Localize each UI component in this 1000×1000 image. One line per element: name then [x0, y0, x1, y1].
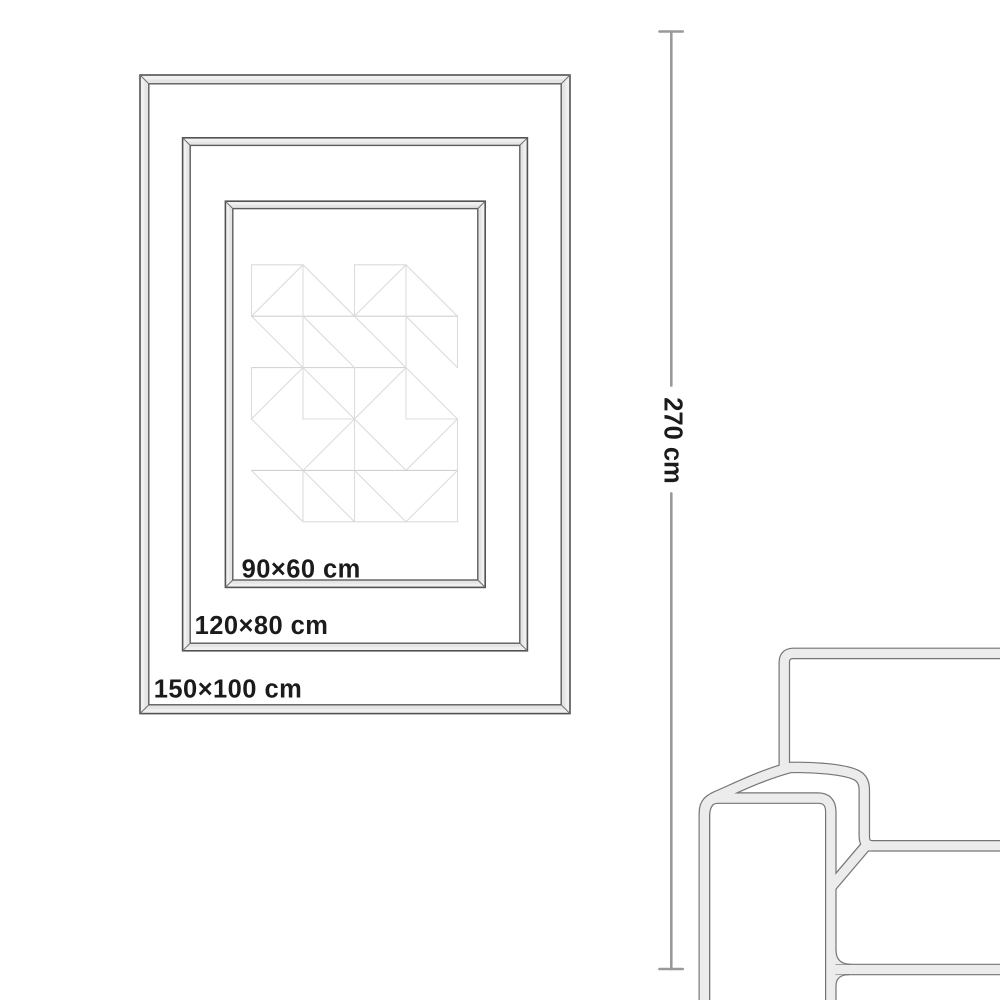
svg-text:150×100 cm: 150×100 cm — [154, 676, 302, 704]
svg-text:90×60 cm: 90×60 cm — [242, 555, 361, 583]
svg-text:270 cm: 270 cm — [658, 397, 686, 484]
svg-text:120×80 cm: 120×80 cm — [195, 612, 329, 640]
